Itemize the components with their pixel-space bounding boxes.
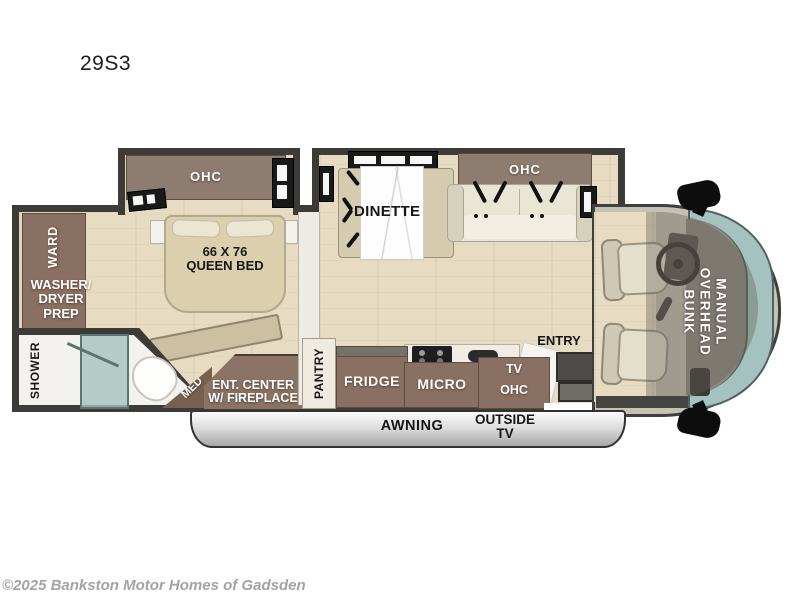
sofa-ohc-label: OHC bbox=[459, 154, 591, 186]
tv-label: TV bbox=[479, 363, 549, 377]
pillow bbox=[172, 219, 221, 238]
pantry-label: PANTRY bbox=[313, 348, 326, 399]
overhead-bunk-label: MANUAL OVERHEAD BUNK bbox=[680, 268, 728, 357]
nightstand-left bbox=[150, 220, 165, 244]
ent-center-label: ENT. CENTER W/ FIREPLACE bbox=[204, 379, 302, 407]
micro-label: MICRO bbox=[405, 363, 479, 407]
pillow bbox=[226, 219, 275, 238]
step-well-trim bbox=[596, 396, 688, 408]
living-side-window-icon bbox=[319, 166, 334, 202]
page-title: 29S3 bbox=[80, 52, 131, 76]
entry-label: ENTRY bbox=[528, 334, 590, 348]
awning-bar: AWNING OUTSIDE TV bbox=[190, 410, 626, 448]
shower-glass-icon bbox=[80, 334, 129, 409]
awning-label: AWNING bbox=[357, 419, 467, 435]
floorplan-page: 29S3 OHC 66 X 76 QUEEN BED WARD WA bbox=[0, 0, 800, 600]
bed-size-label: 66 X 76 QUEEN BED bbox=[166, 245, 284, 273]
ward-label: WARD bbox=[47, 226, 61, 268]
copyright-text: ©2025 Bankston Motor Homes of Gadsden bbox=[2, 577, 306, 594]
bedroom-slideout: OHC bbox=[118, 148, 300, 215]
microwave-cabinet: MICRO bbox=[404, 362, 480, 408]
bedroom-dresser-tv-icon bbox=[127, 188, 167, 212]
tv-ohc-label: OHC bbox=[479, 384, 549, 398]
pantry-cabinet: PANTRY bbox=[302, 338, 336, 409]
bedroom-slide-window-icon bbox=[272, 158, 294, 208]
queen-bed: 66 X 76 QUEEN BED bbox=[164, 215, 286, 313]
washer-dryer-prep-label: WASHER/ DRYER PREP bbox=[18, 278, 104, 321]
outside-tv-label: OUTSIDE TV bbox=[460, 413, 550, 441]
tv-ohc-cabinet: TV OHC bbox=[478, 357, 550, 409]
sofa bbox=[447, 184, 593, 242]
nightstand-right bbox=[284, 220, 298, 244]
sofa-overhead-cabinet: OHC bbox=[458, 153, 592, 187]
shower-label: SHOWER bbox=[29, 341, 42, 398]
entry-step-lower bbox=[558, 382, 596, 402]
dinette-label: DINETTE bbox=[354, 204, 426, 220]
fridge: FRIDGE bbox=[336, 356, 408, 408]
fridge-label: FRIDGE bbox=[337, 357, 407, 407]
